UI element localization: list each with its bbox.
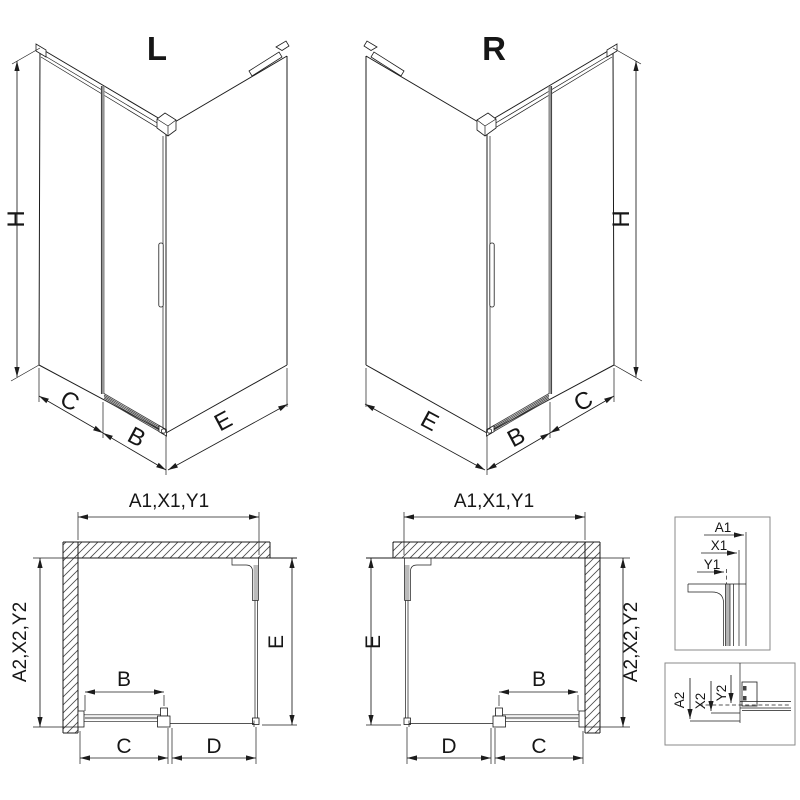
detail-width-border bbox=[675, 517, 770, 650]
wall-hatch-side-right-plan bbox=[585, 558, 600, 733]
plan-left-depth-label: A2,X2,Y2 bbox=[10, 602, 31, 682]
detail-depth-nub-1 bbox=[743, 686, 747, 691]
detail-x2-label: X2 bbox=[693, 693, 708, 710]
detail-y2-label: Y2 bbox=[714, 685, 729, 702]
door-wall-cap bbox=[78, 711, 84, 727]
technical-drawing-page: L H C B E R H E B C A1,X1,Y1 A2,X2,Y2 E … bbox=[0, 0, 800, 800]
plan-right-width-label: A1,X1,Y1 bbox=[454, 491, 534, 512]
iso-view-geometry-mirrored bbox=[364, 41, 642, 475]
detail-view-width: A1 X1 Y1 bbox=[675, 517, 770, 650]
wall-bracket-hook bbox=[276, 41, 289, 51]
plan-right-depth-label: A2,X2,Y2 bbox=[621, 602, 642, 682]
bottom-roller bbox=[161, 429, 165, 433]
detail-x1-label: X1 bbox=[711, 538, 728, 553]
wall-hatch-top-right-plan bbox=[393, 542, 600, 558]
variant-label-left: L bbox=[147, 30, 167, 67]
detail-a1-label: A1 bbox=[715, 520, 732, 535]
wall-outline bbox=[63, 542, 297, 733]
corner-profile-strip bbox=[254, 565, 259, 600]
detail-depth-block bbox=[742, 682, 757, 706]
dim-label-return-left: E bbox=[210, 406, 237, 437]
plan-right-return-label: E bbox=[362, 635, 385, 649]
plan-left-width-label: A1,X1,Y1 bbox=[129, 491, 209, 512]
door-roller-upper bbox=[161, 708, 168, 716]
dim-label-fixed-right: C bbox=[569, 385, 597, 417]
plan-left-fixed-label: C bbox=[116, 735, 131, 758]
rail-end-cap bbox=[36, 44, 46, 57]
iso-view-geometry bbox=[11, 41, 289, 475]
plan-left-return-label: E bbox=[265, 635, 288, 649]
detail-profile-outline bbox=[688, 584, 746, 646]
corner-block bbox=[157, 113, 176, 136]
dim-label-door-right: B bbox=[503, 422, 530, 453]
plan-right-fixed-label: C bbox=[531, 735, 546, 758]
wall-bracket-arm bbox=[249, 52, 282, 76]
plan-left-door-label: B bbox=[117, 668, 131, 691]
side-panel-glass bbox=[255, 601, 258, 720]
detail-a2-label: A2 bbox=[672, 692, 687, 709]
door-roller-housing bbox=[158, 716, 171, 727]
dim-label-height-right: H bbox=[608, 210, 635, 227]
door-handle bbox=[159, 243, 163, 307]
shower-enclosure-drawing: L H C B E R H E B C A1,X1,Y1 A2,X2,Y2 E … bbox=[0, 0, 800, 800]
plan-right-panel-label: D bbox=[441, 735, 456, 758]
variant-label-right: R bbox=[482, 30, 506, 67]
dim-label-door-left: B bbox=[123, 422, 150, 453]
dim-label-fixed-left: C bbox=[56, 385, 84, 417]
detail-profile-strip bbox=[726, 584, 731, 646]
detail-view-depth: A2 X2 Y2 bbox=[665, 663, 795, 745]
detail-y1-label: Y1 bbox=[704, 557, 721, 572]
dim-label-height-left: H bbox=[3, 210, 30, 227]
detail-depth-nub-2 bbox=[743, 696, 747, 701]
dim-label-return-right: E bbox=[416, 406, 443, 437]
front-fixed-panel bbox=[170, 721, 254, 728]
wall-hatch-top-left-plan bbox=[63, 542, 270, 558]
plan-left-panel-label: D bbox=[206, 735, 221, 758]
wall-hatch-side-left-plan bbox=[63, 558, 78, 733]
plan-right-door-label: B bbox=[532, 668, 546, 691]
